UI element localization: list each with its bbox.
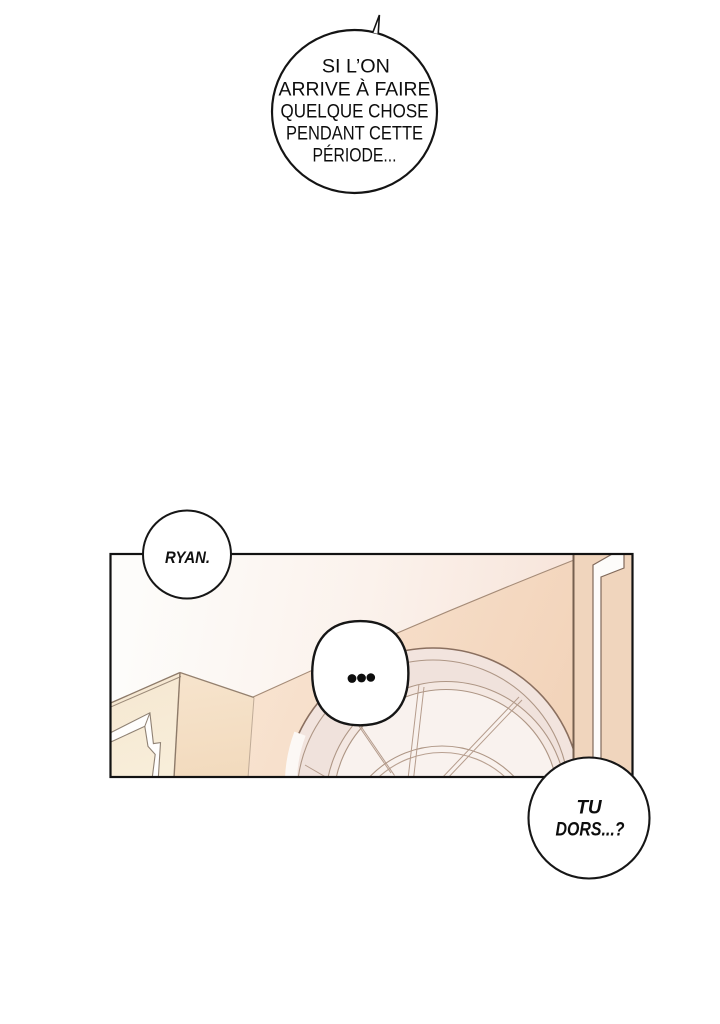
svg-text:PÉRIODE...: PÉRIODE...: [313, 143, 397, 166]
svg-text:ARRIVE À FAIRE: ARRIVE À FAIRE: [279, 77, 431, 100]
svg-text:RYAN.: RYAN.: [165, 549, 210, 567]
svg-text:QUELQUE CHOSE: QUELQUE CHOSE: [281, 100, 429, 122]
svg-text:PENDANT CETTE: PENDANT CETTE: [286, 122, 423, 144]
svg-text:DORS...?: DORS...?: [556, 820, 625, 841]
svg-text:TU: TU: [576, 797, 603, 818]
svg-text:SI L’ON: SI L’ON: [322, 55, 390, 77]
